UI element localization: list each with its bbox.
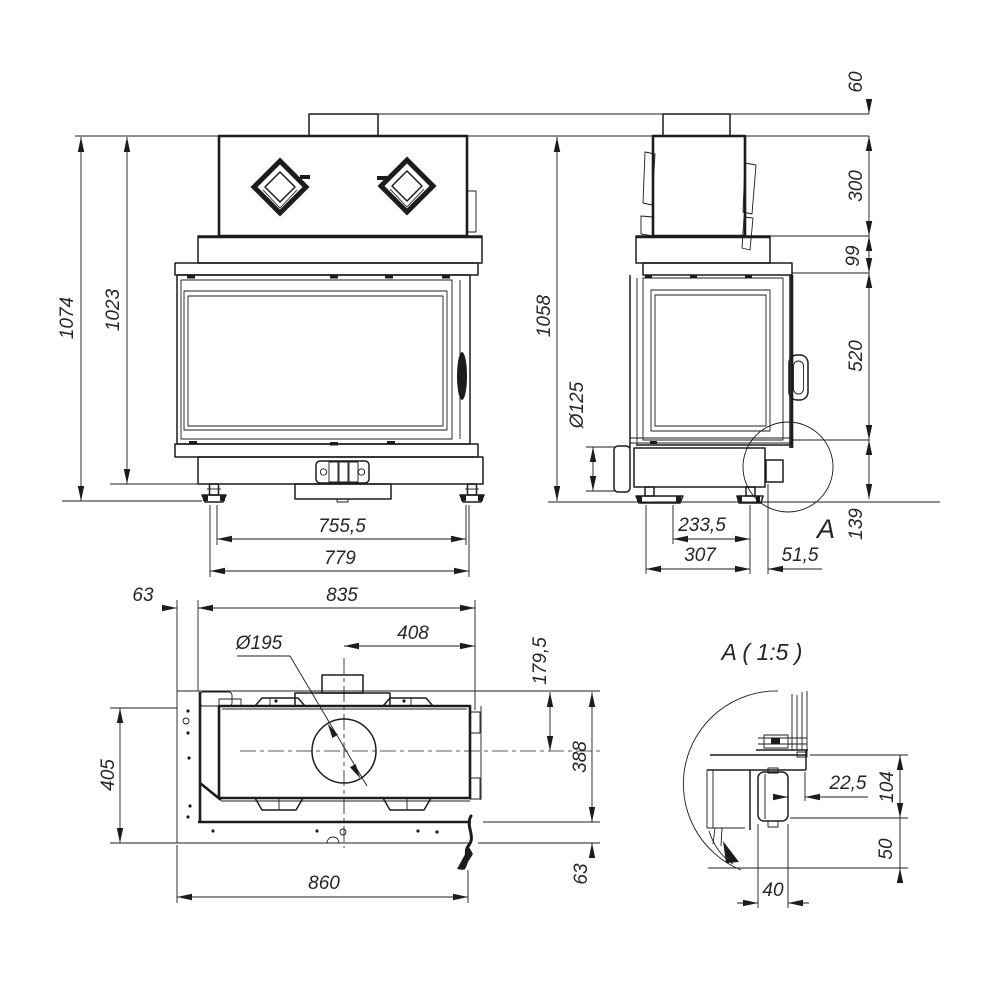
dim-detail-connector-width: 40 <box>762 880 784 901</box>
dim-top-front-lip: 63 <box>132 585 154 606</box>
side-view <box>548 114 940 512</box>
top-flue-stub <box>322 675 363 693</box>
side-feet <box>636 487 763 503</box>
front-view <box>175 114 484 502</box>
dim-side-total-height: 1058 <box>534 294 555 337</box>
detail-title: A ( 1:5 ) <box>720 639 803 665</box>
detail-view-a: A ( 1:5 ) <box>683 639 908 908</box>
dim-flue-from-right: 408 <box>397 623 429 644</box>
dim-front-inner-height: 1023 <box>103 288 124 331</box>
dim-flue-from-front: 179,5 <box>530 637 551 685</box>
top-body <box>219 706 470 798</box>
dim-side-feet-spacing: 233,5 <box>677 515 726 536</box>
dim-side-depth: 307 <box>684 545 717 566</box>
front-left-foot <box>202 484 226 502</box>
right-diamond-vent <box>381 160 433 212</box>
detail-foot <box>709 828 739 864</box>
dim-side-upper-height: 300 <box>846 170 867 202</box>
dim-top-frame-width: 860 <box>308 873 340 894</box>
dim-detail-base-height: 104 <box>877 771 898 803</box>
detail-a-marker: A <box>815 514 835 544</box>
dim-front-base-width: 779 <box>324 548 356 569</box>
dim-top-body-width: 835 <box>326 585 358 606</box>
front-chimney-stub <box>309 114 378 136</box>
front-connector <box>766 460 783 482</box>
drawing-page: 1074 1023 755,5 779 <box>0 0 1000 1000</box>
top-view <box>177 656 600 870</box>
dim-top-body-depth: 388 <box>570 741 591 773</box>
dim-side-stub-height: 60 <box>846 71 867 93</box>
rear-outlet <box>614 446 630 492</box>
dim-top-back-lip: 63 <box>571 863 592 885</box>
dim-detail-feet-height: 50 <box>876 838 897 860</box>
front-door-window <box>177 275 470 446</box>
door-handle <box>457 352 467 400</box>
front-dimensions: 1074 1023 755,5 779 <box>57 137 469 577</box>
dim-rear-outlet-diameter: Ø125 <box>567 381 588 429</box>
front-right-foot <box>460 484 484 502</box>
fireplace-technical-drawing: 1074 1023 755,5 779 <box>0 0 1000 1000</box>
dim-side-front-offset: 51,5 <box>782 545 819 566</box>
dim-detail-gap: 22,5 <box>829 773 867 794</box>
side-upper-box <box>653 136 745 236</box>
dim-flue-diameter: Ø195 <box>235 633 283 654</box>
dim-side-base-height: 139 <box>846 508 867 540</box>
side-window <box>630 275 792 448</box>
side-dimensions: 60 300 99 520 139 1058 Ø125 233,5 307 51… <box>534 71 869 574</box>
dim-side-band-height: 99 <box>843 245 864 267</box>
side-chimney-stub <box>663 114 730 136</box>
detail-boundary-arc <box>683 691 778 870</box>
dim-front-total-height: 1074 <box>57 297 78 339</box>
dim-top-frame-depth: 405 <box>98 759 119 791</box>
dim-side-window-height: 520 <box>846 340 867 372</box>
construction-lines <box>75 114 869 136</box>
detail-connector <box>758 772 788 821</box>
air-control-slider <box>316 461 369 483</box>
dim-front-feet-width: 755,5 <box>318 516 366 537</box>
left-diamond-vent <box>254 161 306 213</box>
